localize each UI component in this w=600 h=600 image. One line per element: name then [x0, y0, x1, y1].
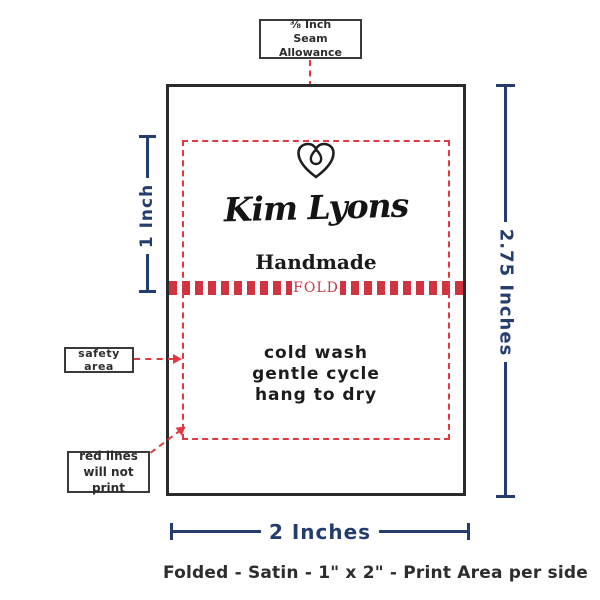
right-dimension-cap-bottom: [496, 495, 515, 498]
red-lines-callout: red lines will not print: [67, 451, 150, 493]
spec-caption: Folded - Satin - 1" x 2" - Print Area pe…: [163, 563, 588, 583]
red-lines-line2: will not print: [69, 464, 148, 496]
fold-label: FOLD: [292, 277, 340, 298]
seam-allowance-line1: ⅜ Inch: [290, 18, 332, 32]
bottom-dimension-cap-left: [170, 523, 173, 540]
bottom-dimension-cap-right: [467, 523, 470, 540]
width-dimension: 2 Inches: [261, 516, 379, 548]
seam-allowance-callout: ⅜ Inch Seam Allowance: [259, 19, 362, 59]
total-height-dimension: 2.75 Inches: [487, 222, 524, 362]
safety-area-callout: safety area: [64, 347, 134, 373]
right-dimension-cap-top: [496, 84, 515, 87]
label-proof-diagram: ⅜ Inch Seam Allowance Kim Lyons Handmade…: [0, 0, 600, 600]
left-dimension-cap-top: [139, 135, 156, 138]
red-lines-line1: red lines: [79, 448, 138, 464]
print-height-dimension: 1 Inch: [130, 178, 164, 254]
seam-allowance-line2: Seam Allowance: [261, 32, 360, 60]
left-dimension-cap-bottom: [139, 290, 156, 293]
